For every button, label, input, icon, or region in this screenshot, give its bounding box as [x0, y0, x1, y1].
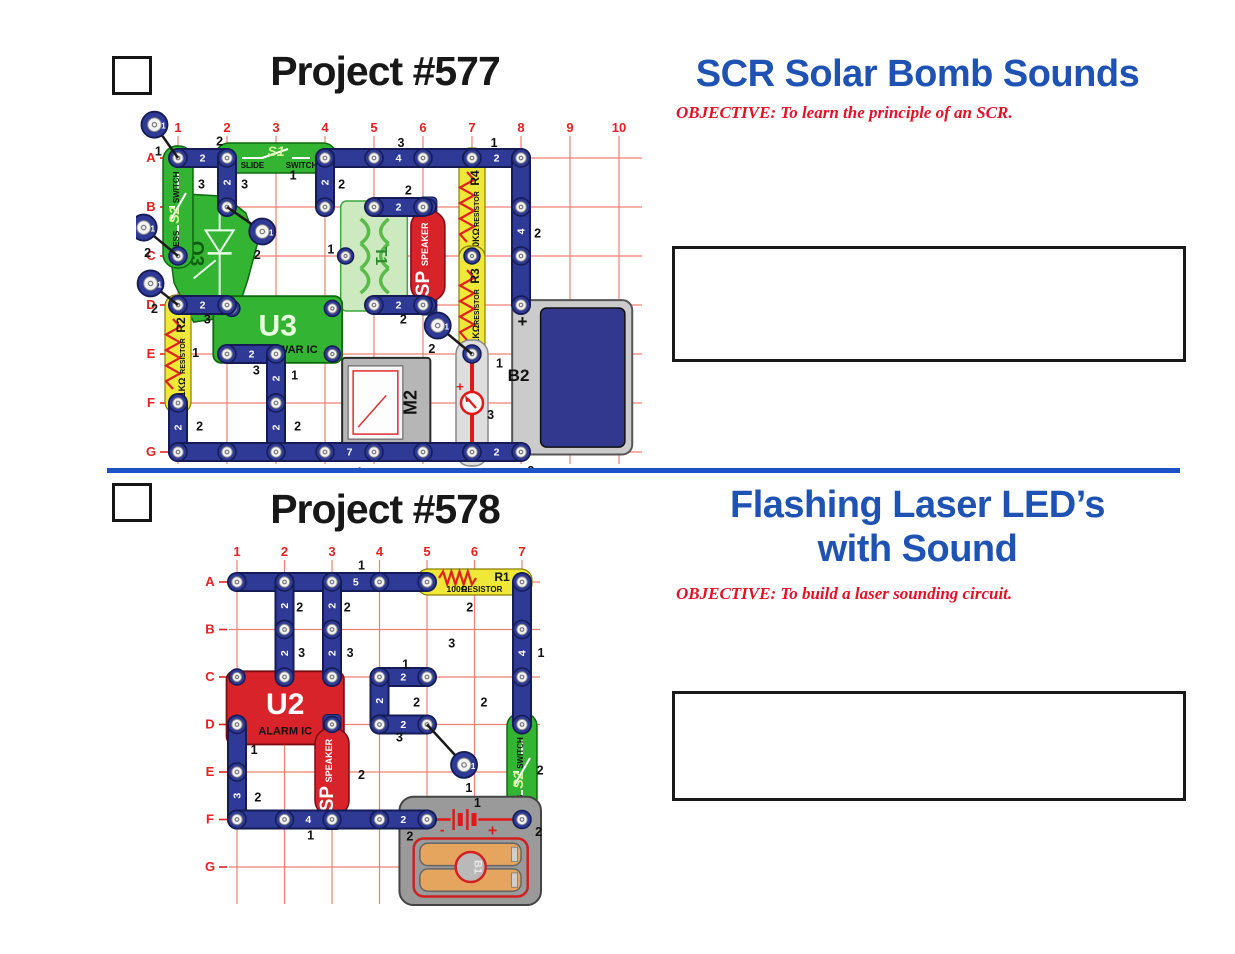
- svg-text:2: 2: [271, 424, 283, 430]
- svg-text:2: 2: [374, 698, 386, 704]
- svg-text:2: 2: [327, 650, 339, 656]
- project-577-objective: OBJECTIVE: To learn the principle of an …: [676, 103, 1013, 123]
- svg-text:SWITCH: SWITCH: [516, 737, 525, 769]
- svg-text:2: 2: [320, 179, 332, 185]
- svg-text:2: 2: [338, 177, 345, 191]
- svg-text:S1: S1: [267, 143, 284, 159]
- svg-text:2: 2: [400, 719, 406, 731]
- svg-text:3: 3: [241, 177, 248, 191]
- svg-text:8: 8: [517, 120, 524, 135]
- svg-text:1: 1: [471, 762, 476, 771]
- svg-text:SP: SP: [317, 786, 338, 812]
- svg-text:1: 1: [402, 657, 409, 671]
- svg-text:2: 2: [151, 302, 158, 316]
- svg-text:2: 2: [494, 153, 500, 165]
- svg-text:SPEAKER: SPEAKER: [420, 222, 430, 266]
- svg-text:2: 2: [279, 650, 291, 656]
- svg-text:2: 2: [400, 814, 406, 826]
- svg-text:4: 4: [376, 544, 384, 559]
- svg-text:+: +: [456, 379, 464, 394]
- svg-text:+: +: [488, 823, 497, 840]
- svg-text:5: 5: [423, 544, 430, 559]
- svg-text:C: C: [205, 669, 215, 684]
- svg-text:RESISTOR: RESISTOR: [474, 191, 481, 227]
- svg-text:6: 6: [471, 544, 478, 559]
- svg-text:S2: S2: [510, 771, 526, 788]
- svg-text:1: 1: [358, 559, 365, 573]
- svg-text:2: 2: [358, 768, 365, 782]
- svg-text:10: 10: [612, 120, 626, 135]
- svg-text:T1: T1: [372, 247, 389, 266]
- svg-text:SPEAKER: SPEAKER: [324, 738, 334, 782]
- svg-text:2: 2: [344, 600, 351, 614]
- svg-text:2: 2: [405, 183, 412, 197]
- svg-text:3: 3: [328, 544, 335, 559]
- project-578-objective: OBJECTIVE: To build a laser sounding cir…: [676, 584, 1012, 604]
- circuit-diagram-project-577: 12345678910ABCDEFGQ3SWITCHS2PRESSS1SLIDE…: [136, 104, 648, 472]
- svg-text:E: E: [206, 764, 215, 779]
- svg-text:B1: B1: [472, 860, 484, 874]
- svg-text:2: 2: [406, 829, 413, 843]
- svg-text:2: 2: [294, 419, 301, 433]
- svg-text:D: D: [205, 717, 214, 732]
- section-divider: [107, 468, 1180, 473]
- svg-text:SLIDE: SLIDE: [241, 161, 265, 170]
- svg-text:G: G: [205, 859, 215, 874]
- svg-text:R2: R2: [174, 317, 188, 333]
- project-577-title: SCR Solar Bomb Sounds: [650, 52, 1185, 96]
- svg-text:3: 3: [448, 637, 455, 651]
- svg-text:2: 2: [296, 600, 303, 614]
- svg-text:2: 2: [200, 300, 206, 312]
- svg-text:2: 2: [216, 134, 223, 148]
- svg-text:1: 1: [307, 828, 314, 842]
- svg-text:B2: B2: [508, 366, 530, 385]
- svg-text:ALARM IC: ALARM IC: [258, 725, 312, 737]
- svg-text:2: 2: [428, 342, 435, 356]
- svg-text:2: 2: [481, 695, 488, 709]
- svg-text:3: 3: [272, 120, 279, 135]
- svg-text:U3: U3: [259, 310, 297, 343]
- svg-text:U2: U2: [266, 688, 304, 721]
- svg-text:1: 1: [538, 646, 545, 660]
- project-578-checkbox[interactable]: [112, 483, 152, 522]
- svg-text:S2: S2: [166, 206, 182, 223]
- svg-text:1: 1: [157, 280, 162, 289]
- svg-text:1: 1: [291, 368, 298, 382]
- svg-text:3: 3: [397, 136, 404, 150]
- svg-text:G: G: [146, 444, 156, 459]
- svg-text:1: 1: [491, 136, 498, 150]
- manual-page: Project #577 SCR Solar Bomb Sounds OBJEC…: [0, 0, 1235, 954]
- svg-text:2: 2: [396, 300, 402, 312]
- svg-text:2: 2: [537, 763, 544, 777]
- project-578-title-line1: Flashing Laser LED’s: [650, 483, 1185, 527]
- svg-text:1: 1: [496, 357, 503, 371]
- circuit-diagram-project-578: 1234567ABCDEFGU2ALARM ICR1100ΩRESISTORSP…: [196, 532, 546, 912]
- svg-text:1: 1: [290, 169, 297, 183]
- svg-text:3: 3: [198, 177, 205, 191]
- svg-text:3: 3: [396, 731, 403, 745]
- svg-text:RESISTOR: RESISTOR: [474, 289, 481, 325]
- svg-text:2: 2: [144, 246, 151, 260]
- svg-text:3: 3: [347, 646, 354, 660]
- svg-text:1: 1: [155, 145, 162, 159]
- svg-text:RESISTOR: RESISTOR: [462, 585, 503, 594]
- svg-text:1: 1: [233, 544, 240, 559]
- svg-text:F: F: [147, 395, 155, 410]
- svg-text:SP: SP: [413, 270, 434, 296]
- svg-text:2: 2: [494, 447, 500, 459]
- svg-text:2: 2: [396, 202, 402, 214]
- svg-text:A: A: [205, 574, 215, 589]
- svg-text:7: 7: [518, 544, 525, 559]
- svg-text:1: 1: [474, 796, 481, 810]
- svg-text:4: 4: [396, 153, 402, 165]
- svg-text:E: E: [147, 346, 156, 361]
- svg-text:1: 1: [465, 781, 472, 795]
- answer-box-project-577: [672, 246, 1186, 362]
- svg-text:2: 2: [222, 179, 234, 185]
- project-577-number: Project #577: [185, 48, 585, 95]
- svg-text:4: 4: [305, 814, 311, 826]
- svg-text:+: +: [518, 312, 528, 331]
- svg-text:2: 2: [249, 349, 255, 361]
- svg-text:1: 1: [269, 229, 274, 238]
- svg-text:2: 2: [400, 672, 406, 684]
- svg-text:SWITCH: SWITCH: [172, 171, 181, 203]
- project-578-title-line2: with Sound: [650, 527, 1185, 571]
- svg-text:6: 6: [419, 120, 426, 135]
- svg-text:R3: R3: [468, 268, 482, 284]
- svg-text:2: 2: [535, 825, 542, 839]
- svg-text:2: 2: [400, 313, 407, 327]
- project-578-title: Flashing Laser LED’s with Sound: [650, 483, 1185, 571]
- svg-text:2: 2: [327, 603, 339, 609]
- svg-text:B: B: [205, 622, 214, 637]
- svg-text:F: F: [206, 812, 214, 827]
- svg-text:1: 1: [174, 120, 181, 135]
- svg-text:2: 2: [173, 424, 185, 430]
- svg-text:3: 3: [298, 646, 305, 660]
- svg-text:2: 2: [254, 248, 261, 262]
- svg-text:2: 2: [254, 790, 261, 804]
- svg-text:7: 7: [468, 120, 475, 135]
- svg-text:R4: R4: [468, 170, 482, 186]
- svg-text:5: 5: [353, 577, 359, 589]
- svg-text:R1: R1: [494, 570, 510, 584]
- svg-text:2: 2: [200, 153, 206, 165]
- svg-text:5: 5: [370, 120, 377, 135]
- answer-box-project-578: [672, 691, 1186, 801]
- svg-text:2: 2: [196, 419, 203, 433]
- svg-text:3: 3: [204, 313, 211, 327]
- svg-text:RESISTOR: RESISTOR: [180, 338, 187, 374]
- svg-text:2: 2: [534, 226, 541, 240]
- svg-text:2: 2: [223, 120, 230, 135]
- svg-text:3: 3: [253, 364, 260, 378]
- svg-text:4: 4: [516, 228, 528, 234]
- svg-text:2: 2: [466, 600, 473, 614]
- svg-text:9: 9: [566, 120, 573, 135]
- svg-text:1: 1: [251, 743, 258, 757]
- svg-text:3: 3: [487, 408, 494, 422]
- project-578-number: Project #578: [185, 486, 585, 533]
- svg-text:1: 1: [161, 122, 166, 131]
- svg-text:1: 1: [192, 346, 199, 360]
- svg-text:2: 2: [281, 544, 288, 559]
- svg-text:B: B: [146, 199, 155, 214]
- project-577-checkbox[interactable]: [112, 56, 152, 95]
- svg-text:2: 2: [271, 375, 283, 381]
- svg-text:1: 1: [150, 225, 155, 234]
- svg-text:1: 1: [444, 323, 449, 332]
- svg-text:7: 7: [347, 447, 353, 459]
- svg-text:4: 4: [517, 650, 529, 656]
- svg-text:1: 1: [327, 243, 334, 257]
- svg-text:M2: M2: [400, 390, 420, 415]
- svg-text:3: 3: [232, 793, 244, 799]
- svg-text:-: -: [440, 822, 445, 838]
- svg-text:2: 2: [279, 603, 291, 609]
- svg-text:2: 2: [413, 695, 420, 709]
- svg-text:4: 4: [321, 120, 329, 135]
